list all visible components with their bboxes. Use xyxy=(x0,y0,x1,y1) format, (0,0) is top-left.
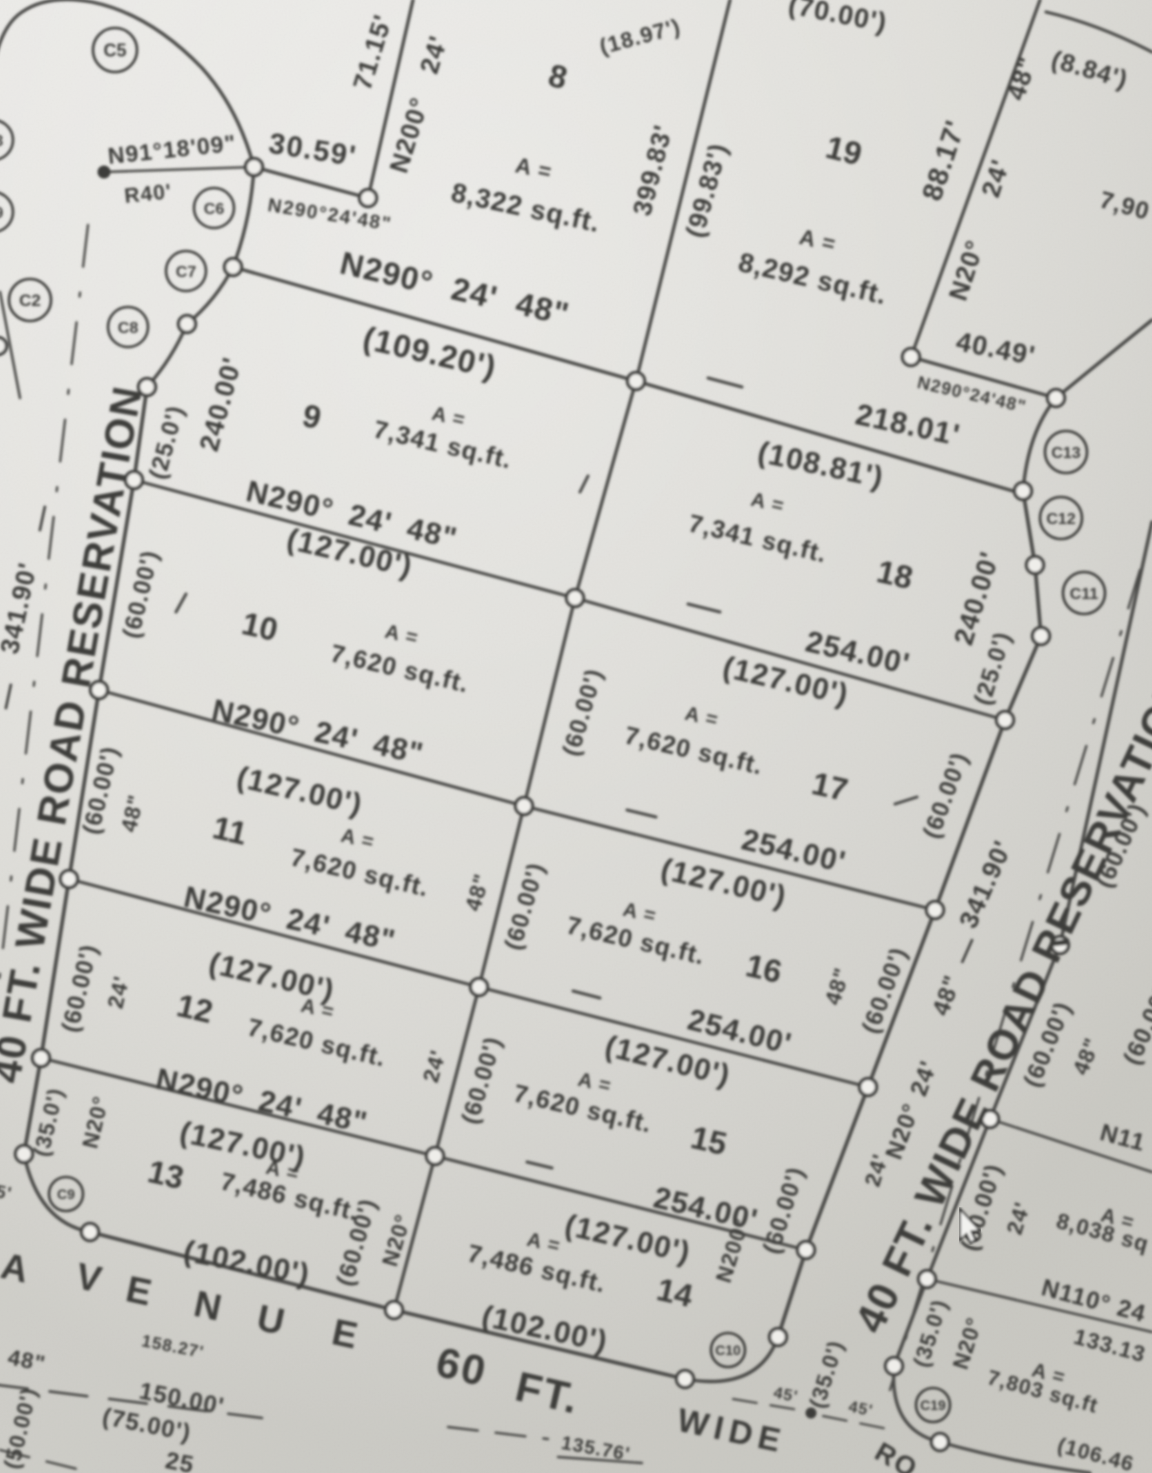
svg-text:C13: C13 xyxy=(1051,445,1080,462)
svg-text:C6: C6 xyxy=(204,201,225,218)
svg-text:25: 25 xyxy=(163,1447,196,1473)
svg-text:C2: C2 xyxy=(19,291,41,310)
svg-text:C7: C7 xyxy=(176,264,197,281)
svg-text:C9: C9 xyxy=(57,1186,75,1202)
svg-text:C12: C12 xyxy=(1046,511,1075,528)
svg-text:C11: C11 xyxy=(1070,586,1099,603)
svg-text:C3: C3 xyxy=(0,133,3,150)
svg-text:C19: C19 xyxy=(920,1397,946,1413)
svg-text:C10: C10 xyxy=(715,1342,741,1358)
svg-text:C8: C8 xyxy=(118,320,139,337)
svg-text:C9: C9 xyxy=(0,205,3,222)
svg-text:C5: C5 xyxy=(103,40,126,60)
svg-text:R40': R40' xyxy=(123,180,173,208)
